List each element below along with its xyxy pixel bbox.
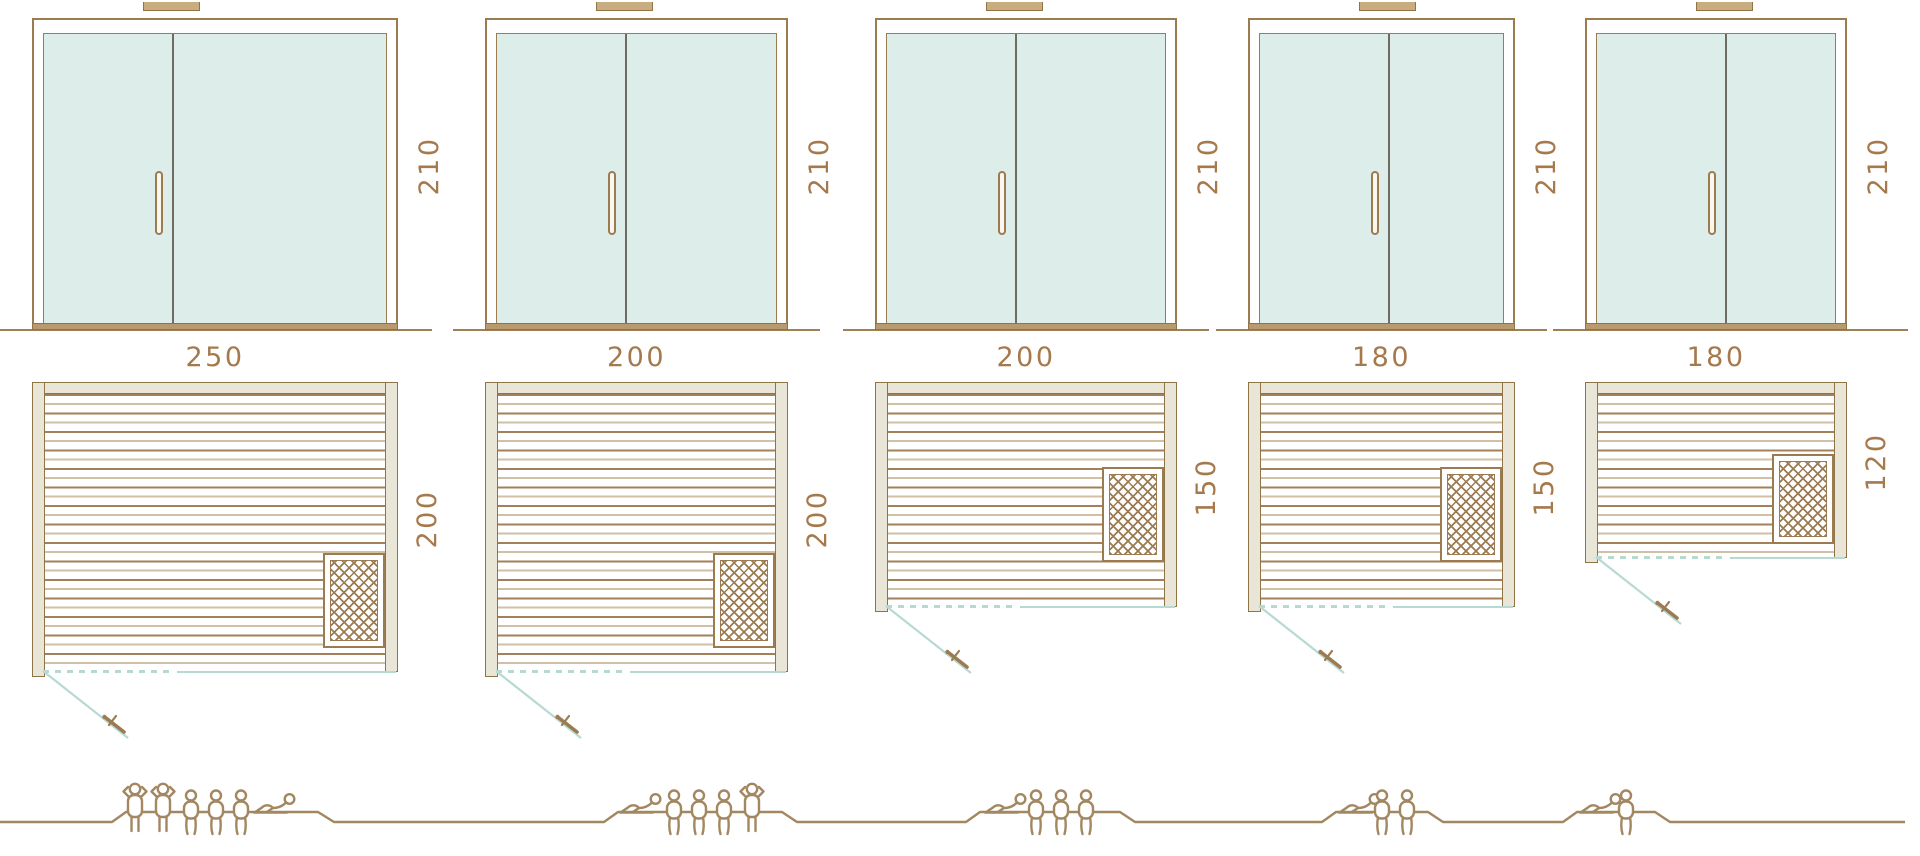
plan-width-dimension: 200 (485, 344, 788, 372)
glass-door-panels (1259, 33, 1504, 325)
person-lying-icon (620, 794, 660, 812)
door-elevation (1248, 18, 1515, 330)
glass-door-panels (496, 33, 777, 325)
floor-plan (32, 382, 398, 672)
floor-plan (1248, 382, 1515, 607)
door-elevation (875, 18, 1177, 330)
door-handle-icon (608, 171, 616, 235)
door-swing-icon (883, 603, 993, 688)
right-wall (1164, 382, 1177, 607)
heater-icon (1102, 467, 1164, 562)
left-wall-post (485, 382, 498, 677)
person-sitting-icon (1400, 791, 1414, 835)
roof-vent-icon (1359, 2, 1416, 11)
door-swing-icon (40, 668, 150, 753)
door-elevation (485, 18, 788, 330)
door-elevation (32, 18, 398, 330)
glass-front-line (1730, 557, 1845, 559)
person-sitting-icon (1054, 791, 1068, 835)
glass-door-panels (1596, 33, 1836, 325)
door-swing-icon (1593, 554, 1703, 639)
door-sill (485, 323, 788, 330)
back-wall (32, 382, 398, 394)
roof-vent-icon (143, 2, 200, 11)
sauna-size-diagram: 210 250 200 (0, 0, 1920, 856)
back-wall (1585, 382, 1847, 394)
glass-front-line (1393, 606, 1513, 608)
person-standing-icon (124, 784, 147, 831)
glass-door-panels (43, 33, 387, 325)
capacity-group-4 (1339, 791, 1414, 835)
person-sitting-icon (1619, 791, 1633, 835)
door-sill (1585, 323, 1847, 330)
person-sitting-icon (1029, 791, 1043, 835)
left-wall-post (875, 382, 888, 612)
plan-width-dimension: 250 (32, 344, 398, 372)
door-swing-icon (493, 668, 603, 753)
door-handle-icon (155, 171, 163, 235)
door-leaf-divider (1725, 34, 1727, 324)
door-height-dimension: 210 (806, 121, 834, 211)
person-sitting-icon (717, 791, 731, 835)
capacity-group-5 (1580, 791, 1633, 835)
roof-vent-icon (1696, 2, 1753, 11)
right-wall (1502, 382, 1515, 607)
person-lying-icon (985, 794, 1025, 812)
person-sitting-icon (209, 791, 223, 835)
person-standing-icon (741, 784, 764, 831)
left-wall-post (1585, 382, 1598, 563)
door-sill (1248, 323, 1515, 330)
floor-plan (875, 382, 1177, 607)
back-wall (485, 382, 788, 394)
door-leaf-divider (625, 34, 627, 324)
person-lying-icon (1339, 794, 1379, 812)
door-leaf-divider (172, 34, 174, 324)
door-height-dimension: 210 (1195, 121, 1223, 211)
back-wall (875, 382, 1177, 394)
door-elevation (1585, 18, 1847, 330)
door-height-dimension: 210 (416, 121, 444, 211)
person-sitting-icon (1079, 791, 1093, 835)
glass-front-line (630, 671, 786, 673)
left-wall-post (1248, 382, 1261, 612)
heater-icon (713, 553, 775, 648)
plan-width-dimension: 180 (1585, 344, 1847, 372)
plan-width-dimension: 180 (1248, 344, 1515, 372)
door-sill (32, 323, 398, 330)
person-lying-icon (1580, 794, 1620, 812)
heater-icon (1440, 467, 1502, 562)
person-lying-icon (254, 794, 294, 812)
heater-icon (1772, 454, 1834, 544)
door-leaf-divider (1388, 34, 1390, 324)
right-wall (775, 382, 788, 672)
glass-front-line (1020, 606, 1175, 608)
plan-depth-dimension: 150 (1531, 442, 1559, 532)
person-sitting-icon (1375, 791, 1389, 835)
plan-depth-dimension: 150 (1193, 442, 1221, 532)
heater-icon (323, 553, 385, 648)
door-leaf-divider (1015, 34, 1017, 324)
capacity-group-1 (124, 784, 295, 834)
roof-vent-icon (986, 2, 1043, 11)
plan-depth-dimension: 200 (414, 474, 442, 564)
person-sitting-icon (692, 791, 706, 835)
glass-door-panels (886, 33, 1166, 325)
capacity-figures-strip (0, 760, 1920, 856)
person-standing-icon (152, 784, 175, 831)
plan-width-dimension: 200 (875, 344, 1177, 372)
door-height-dimension: 210 (1865, 121, 1893, 211)
capacity-group-2 (620, 784, 764, 834)
glass-front-line (177, 671, 396, 673)
plan-depth-dimension: 200 (804, 474, 832, 564)
roof-vent-icon (596, 2, 653, 11)
person-sitting-icon (234, 791, 248, 835)
door-swing-icon (1256, 603, 1366, 688)
plan-depth-dimension: 120 (1863, 417, 1891, 507)
floor-plan (1585, 382, 1847, 558)
door-height-dimension: 210 (1533, 121, 1561, 211)
left-wall-post (32, 382, 45, 677)
door-sill (875, 323, 1177, 330)
door-handle-icon (1708, 171, 1716, 235)
person-sitting-icon (667, 791, 681, 835)
person-sitting-icon (184, 791, 198, 835)
right-wall (1834, 382, 1847, 558)
right-wall (385, 382, 398, 672)
door-handle-icon (1371, 171, 1379, 235)
floor-plan (485, 382, 788, 672)
door-handle-icon (998, 171, 1006, 235)
back-wall (1248, 382, 1515, 394)
